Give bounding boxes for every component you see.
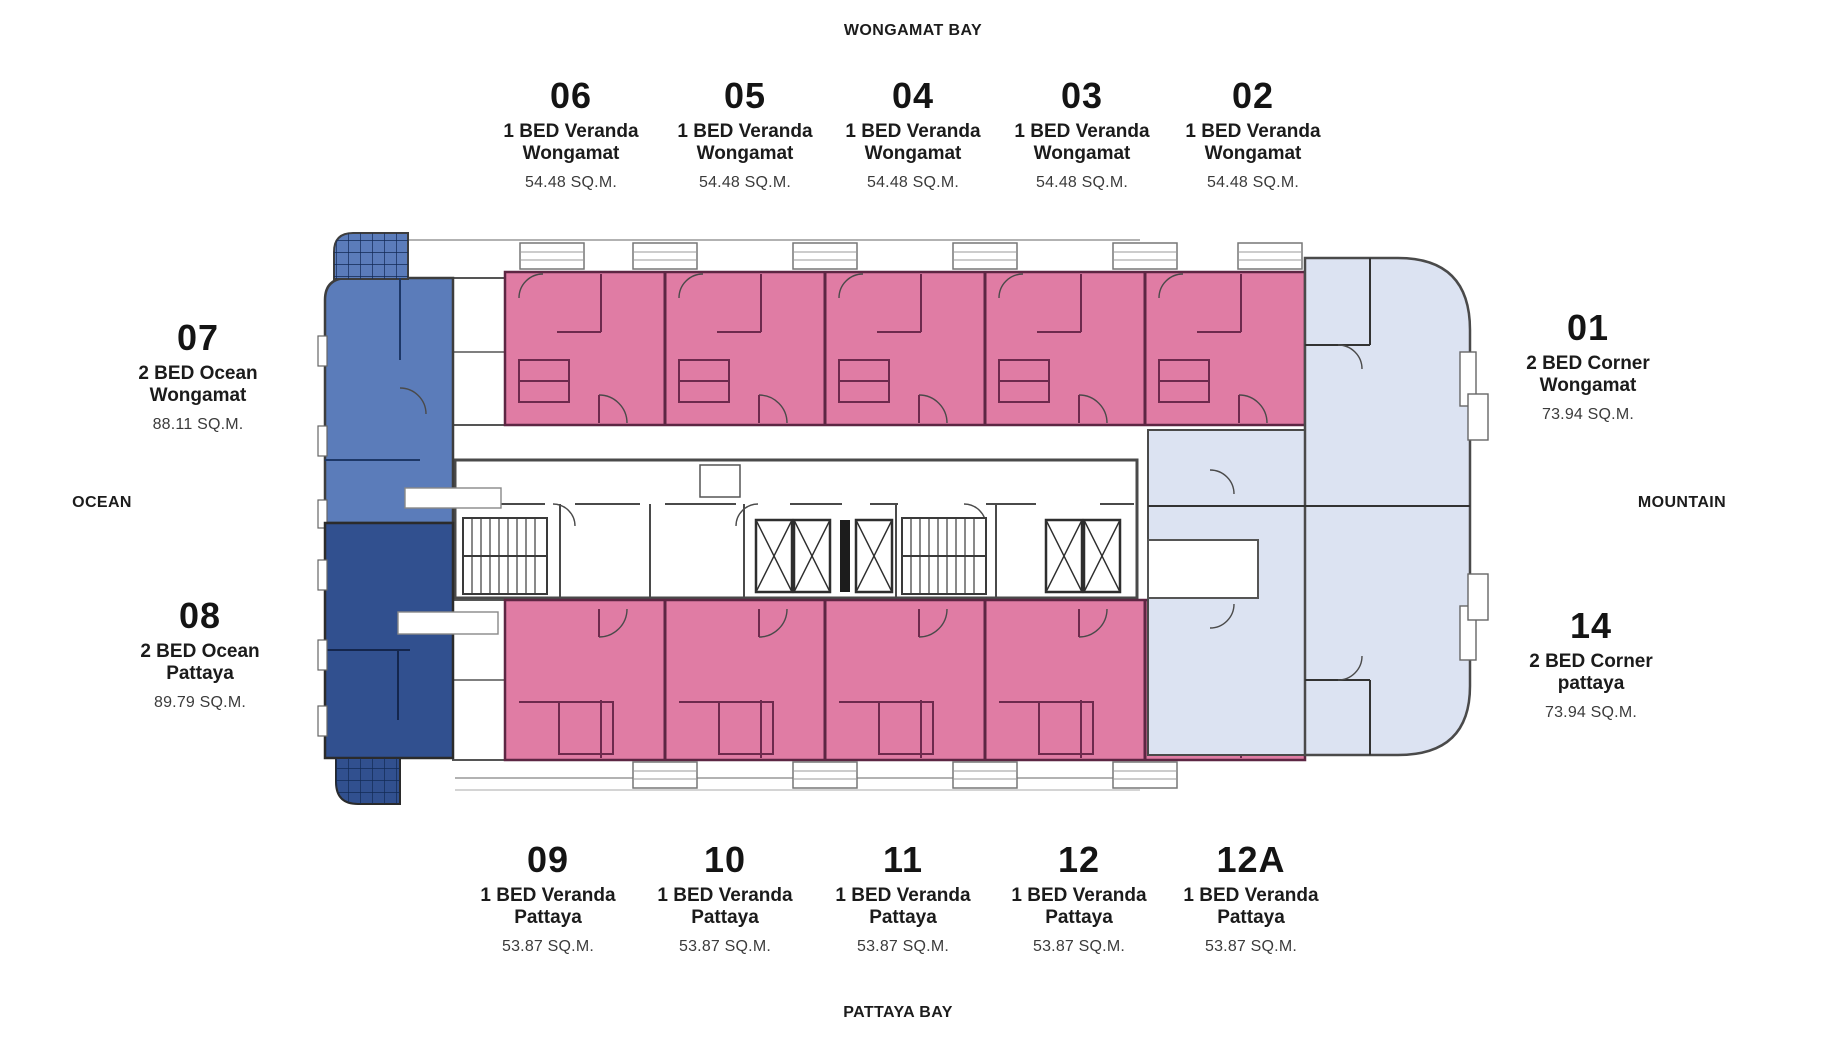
unit-type-line2: Pattaya <box>1217 907 1285 928</box>
unit-type: 2 BED OceanWongamat <box>93 363 303 407</box>
unit-area: 54.48 SQ.M. <box>1148 174 1358 192</box>
unit-type-line1: 1 BED Veranda <box>657 885 792 906</box>
label-mountain: MOUNTAIN <box>1638 494 1726 512</box>
unit-area: 89.79 SQ.M. <box>95 694 305 712</box>
unit-number: 14 <box>1486 608 1696 644</box>
units-top-band <box>505 272 1305 425</box>
unit-type-line2: Pattaya <box>691 907 759 928</box>
unit-number: 07 <box>93 320 303 356</box>
unit-type-line2: Wongamat <box>1540 375 1637 396</box>
unit-type-line2: pattaya <box>1558 673 1625 694</box>
unit-type-line2: Pattaya <box>869 907 937 928</box>
unit-type-line2: Pattaya <box>514 907 582 928</box>
unit-type-line1: 2 BED Ocean <box>140 641 259 662</box>
unit-label-07: 07 2 BED OceanWongamat 88.11 SQ.M. <box>93 320 303 434</box>
unit-type-line1: 2 BED Corner <box>1529 651 1653 672</box>
unit-type-line2: Wongamat <box>523 143 620 164</box>
unit-type: 2 BED Cornerpattaya <box>1486 651 1696 695</box>
unit-type-line1: 1 BED Veranda <box>845 121 980 142</box>
unit-label-08: 08 2 BED OceanPattaya 89.79 SQ.M. <box>95 598 305 712</box>
unit-label-12A: 12A 1 BED VerandaPattaya 53.87 SQ.M. <box>1146 842 1356 956</box>
unit-type-line1: 2 BED Ocean <box>138 363 257 384</box>
unit-type-line1: 1 BED Veranda <box>1185 121 1320 142</box>
unit-type: 2 BED CornerWongamat <box>1483 353 1693 397</box>
service-core <box>455 460 1137 598</box>
unit-number: 12A <box>1146 842 1356 878</box>
unit-type-line1: 1 BED Veranda <box>503 121 638 142</box>
unit-type-line1: 1 BED Veranda <box>1014 121 1149 142</box>
unit-type-line1: 2 BED Corner <box>1526 353 1650 374</box>
unit-number: 02 <box>1148 78 1358 114</box>
unit-type: 2 BED OceanPattaya <box>95 641 305 685</box>
unit-area: 53.87 SQ.M. <box>1146 938 1356 956</box>
label-pattaya-bay: PATTAYA BAY <box>843 1004 953 1022</box>
label-ocean: OCEAN <box>72 494 132 512</box>
unit-type-line2: Wongamat <box>1205 143 1302 164</box>
unit-type: 1 BED VerandaWongamat <box>1148 121 1358 165</box>
unit-area: 73.94 SQ.M. <box>1486 704 1696 722</box>
unit-type-line1: 1 BED Veranda <box>1183 885 1318 906</box>
unit-label-01: 01 2 BED CornerWongamat 73.94 SQ.M. <box>1483 310 1693 424</box>
floorplan-page: WONGAMAT BAY OCEAN MOUNTAIN PATTAYA BAY … <box>0 0 1828 1056</box>
balcony-boxes-top <box>520 243 1302 269</box>
unit-number: 01 <box>1483 310 1693 346</box>
unit-number: 08 <box>95 598 305 634</box>
unit-type-line2: Wongamat <box>697 143 794 164</box>
unit-label-14: 14 2 BED Cornerpattaya 73.94 SQ.M. <box>1486 608 1696 722</box>
unit-type: 1 BED VerandaPattaya <box>1146 885 1356 929</box>
label-wongamat-bay: WONGAMAT BAY <box>844 22 982 40</box>
unit-type-line2: Wongamat <box>150 385 247 406</box>
unit-type-line2: Pattaya <box>166 663 234 684</box>
unit-type-line2: Wongamat <box>865 143 962 164</box>
unit-type-line1: 1 BED Veranda <box>1011 885 1146 906</box>
balcony-boxes-bottom <box>633 762 1177 788</box>
unit-type-line2: Pattaya <box>1045 907 1113 928</box>
unit-type-line1: 1 BED Veranda <box>835 885 970 906</box>
unit-area: 88.11 SQ.M. <box>93 416 303 434</box>
unit-area: 73.94 SQ.M. <box>1483 406 1693 424</box>
unit-type-line2: Wongamat <box>1034 143 1131 164</box>
unit-type-line1: 1 BED Veranda <box>480 885 615 906</box>
unit-type-line1: 1 BED Veranda <box>677 121 812 142</box>
unit-label-02: 02 1 BED VerandaWongamat 54.48 SQ.M. <box>1148 78 1358 192</box>
